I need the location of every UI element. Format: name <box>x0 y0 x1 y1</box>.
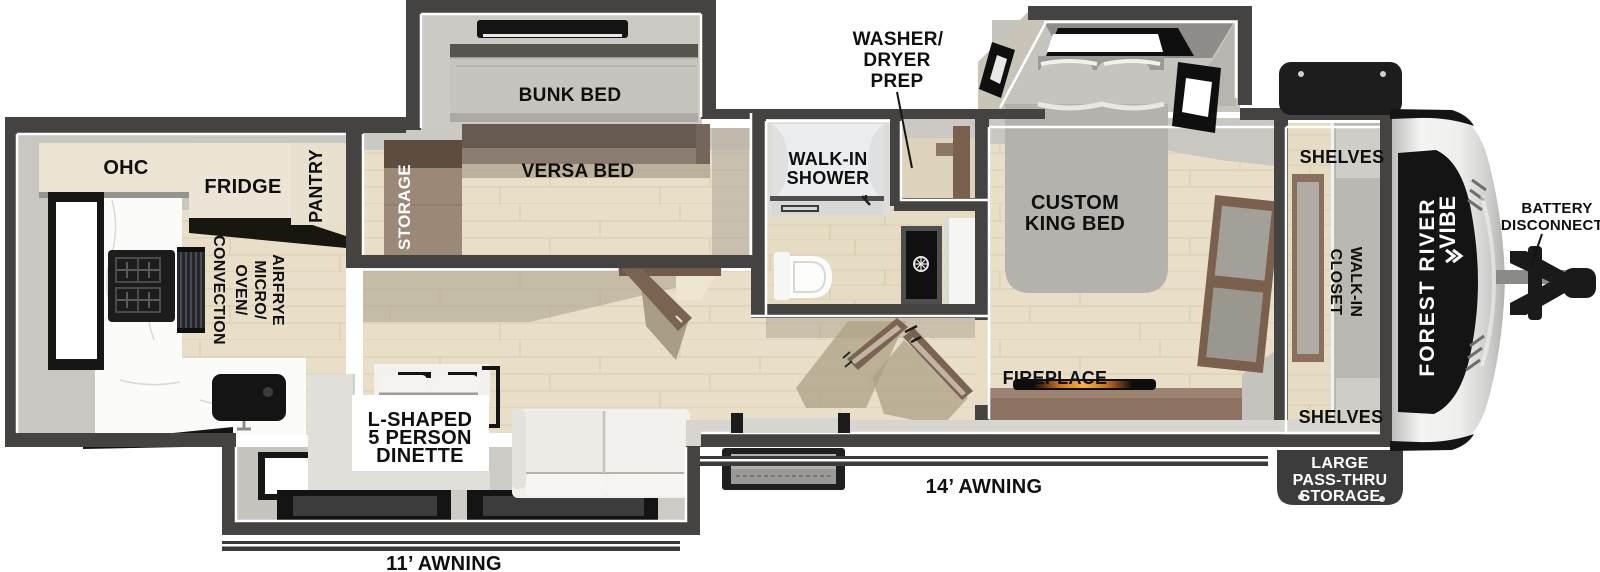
svg-text:DRYER: DRYER <box>863 50 930 71</box>
svg-text:MICRO/: MICRO/ <box>251 260 268 320</box>
svg-text:DISCONNECT: DISCONNECT <box>1501 217 1600 234</box>
svg-text:SHELVES: SHELVES <box>1300 147 1385 167</box>
svg-text:STORAGE: STORAGE <box>395 164 414 250</box>
svg-text:WASHER/: WASHER/ <box>853 29 944 50</box>
svg-text:VERSA BED: VERSA BED <box>522 161 635 182</box>
svg-text:PANTRY: PANTRY <box>306 149 326 223</box>
svg-text:OVEN/: OVEN/ <box>232 264 249 316</box>
svg-text:FIREPLACE: FIREPLACE <box>1003 368 1108 388</box>
svg-text:BUNK BED: BUNK BED <box>519 85 622 106</box>
svg-text:FRIDGE: FRIDGE <box>204 176 281 198</box>
svg-text:DINETTE: DINETTE <box>376 445 464 467</box>
svg-text:11’ AWNING: 11’ AWNING <box>386 553 502 572</box>
svg-text:CONVECTION: CONVECTION <box>210 235 227 345</box>
svg-text:14’ AWNING: 14’ AWNING <box>926 476 1043 498</box>
svg-text:AIRFRYE: AIRFRYE <box>269 254 286 326</box>
svg-text:SHOWER: SHOWER <box>787 168 870 188</box>
svg-text:PASS-THRU: PASS-THRU <box>1293 472 1388 489</box>
svg-text:STORAGE: STORAGE <box>1300 488 1381 505</box>
svg-text:KING BED: KING BED <box>1025 213 1125 235</box>
svg-text:SHELVES: SHELVES <box>1299 407 1384 427</box>
svg-text:PREP: PREP <box>871 71 924 92</box>
svg-text:CUSTOM: CUSTOM <box>1031 192 1119 214</box>
svg-text:CLOSET: CLOSET <box>1327 249 1344 316</box>
svg-text:VIBE: VIBE <box>1435 195 1460 248</box>
svg-text:LARGE: LARGE <box>1311 455 1369 472</box>
svg-text:WALK-IN: WALK-IN <box>1347 247 1364 318</box>
svg-text:BATTERY: BATTERY <box>1521 200 1592 217</box>
svg-text:WALK-IN: WALK-IN <box>788 149 867 169</box>
svg-text:OHC: OHC <box>103 157 148 179</box>
